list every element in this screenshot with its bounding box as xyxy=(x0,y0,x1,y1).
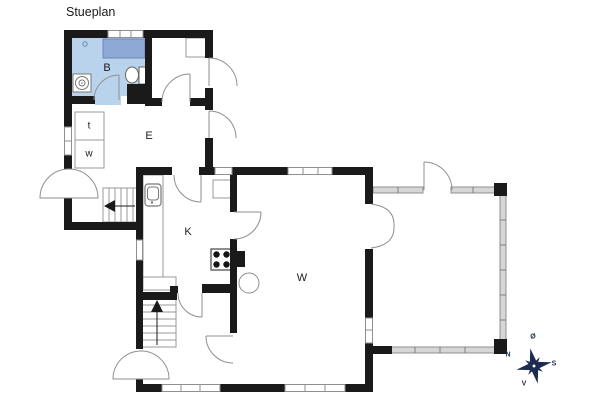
compass-label-south: S xyxy=(552,361,557,368)
double-door-to-conservatory xyxy=(371,204,394,248)
room-label-toilet-closet: t xyxy=(88,121,91,132)
compass-rose xyxy=(513,345,556,388)
wood-stove xyxy=(239,273,259,293)
conservatory-glass-walls xyxy=(373,187,506,353)
room-label-wardrobe-closet: w xyxy=(85,149,92,160)
room-label-bathroom: B xyxy=(103,62,110,74)
utility-room-door xyxy=(162,74,190,102)
exterior-door-east-1 xyxy=(209,58,237,86)
toilet xyxy=(126,67,148,84)
kitchen-to-living-door xyxy=(234,212,261,239)
floorplan-drawing xyxy=(0,0,600,400)
room-label-living: W xyxy=(297,272,307,284)
exterior-door-east-2 xyxy=(209,111,236,138)
entrance-southwest xyxy=(113,351,169,379)
kitchen-to-hall-door xyxy=(178,293,202,317)
bathroom-sink xyxy=(73,74,91,92)
main-entrance-west xyxy=(40,169,98,198)
hall-to-living-door xyxy=(206,336,233,363)
compass-label-north: N xyxy=(505,352,510,359)
kitchen-sink xyxy=(145,184,161,206)
room-label-kitchen: K xyxy=(184,226,191,238)
compass-label-east: Ø xyxy=(530,334,535,341)
basement-stairs xyxy=(103,188,138,222)
hall-to-kitchen-door xyxy=(174,175,201,202)
stove xyxy=(211,249,232,270)
room-label-entry: E xyxy=(145,130,152,142)
conservatory-exterior-door xyxy=(424,162,452,190)
compass-label-west: V xyxy=(522,381,527,388)
upper-stairs xyxy=(138,298,176,347)
doors xyxy=(40,58,452,379)
floorplan-canvas: Stueplan xyxy=(0,0,600,400)
